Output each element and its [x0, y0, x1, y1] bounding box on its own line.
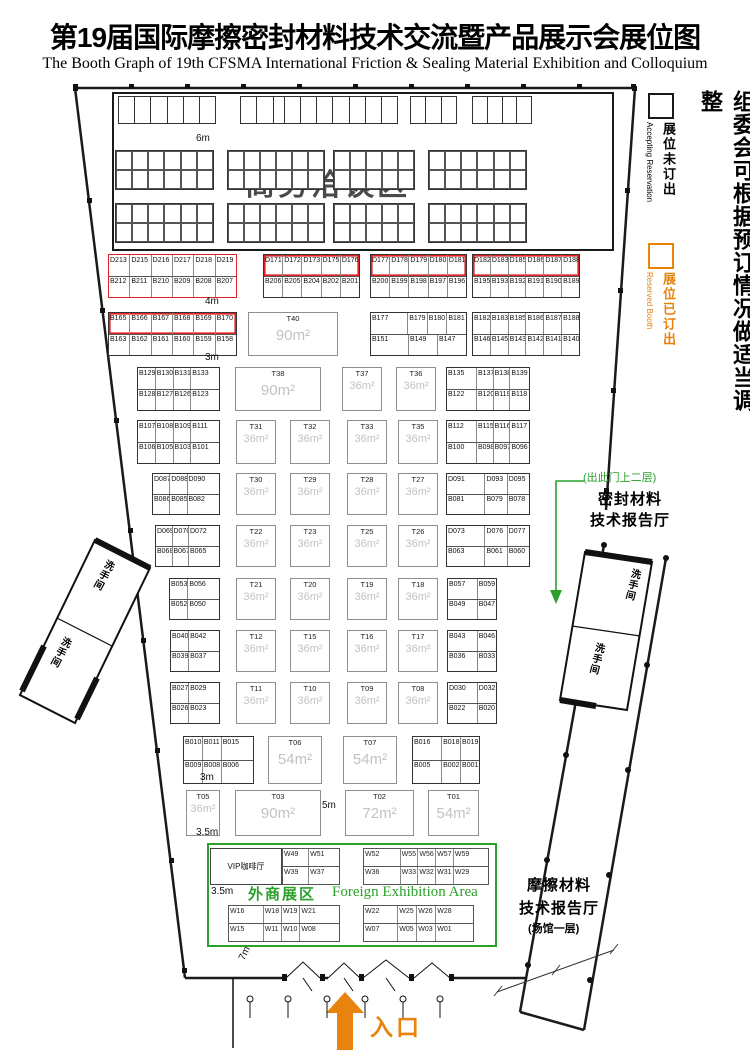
booth-cell: B019 [460, 737, 479, 760]
booth-cell: B023 [188, 704, 219, 724]
t-booth: T2936m² [290, 473, 330, 515]
t-booth: T1036m² [290, 682, 330, 724]
booth-cell: B096 [509, 443, 529, 464]
negotiation-cell [292, 170, 308, 189]
negotiation-grid [428, 203, 527, 243]
booth-cell: B210 [151, 277, 172, 298]
booth-cell: B183 [490, 313, 508, 334]
booth-block: B165B166B167B168B169B170B163B162B161B160… [108, 312, 237, 356]
booth-row: B081B079B078 [447, 494, 529, 515]
sealing-hall-note: (出此门上二层) [583, 469, 656, 485]
booth-cell: B177 [371, 313, 407, 334]
booth-cell: B185 [508, 313, 526, 334]
booth-cell: B120 [476, 390, 493, 411]
booth-cell: B029 [188, 683, 219, 703]
negotiation-cell [477, 151, 493, 170]
booth-cell: B188 [561, 313, 579, 334]
booth-row: B052B050 [170, 599, 219, 620]
booth-cell: D179 [408, 255, 427, 276]
t-booth-area: 36m² [237, 539, 275, 550]
booth-cell: B015 [221, 737, 253, 760]
t-booth-id: T35 [399, 422, 437, 431]
negotiation-cell [199, 97, 215, 123]
foreign-booth-cell: W55 [400, 849, 418, 866]
booth-cell: B181 [446, 313, 466, 334]
t-booth-id: T25 [348, 527, 386, 536]
booth-cell: B033 [477, 652, 496, 672]
booth-cell: B147 [437, 335, 466, 356]
negotiation-cell [349, 97, 365, 123]
negotiation-cell [429, 204, 445, 223]
negotiation-cell [516, 97, 531, 123]
negotiation-cell [366, 151, 382, 170]
legend-reserved-swatch [648, 243, 674, 269]
booth-row: B165B166B167B168B169B170 [109, 313, 236, 334]
foreign-booth-cell: W56 [417, 849, 435, 866]
booth-row: W22W25W26W28 [364, 906, 473, 923]
booth-row: B027B029 [171, 683, 219, 703]
negotiation-strip [240, 96, 290, 124]
t-booth-area: 36m² [348, 487, 386, 498]
negotiation-cell [181, 170, 197, 189]
negotiation-cell [461, 223, 477, 242]
booth-row: B112B115B116B117 [447, 421, 529, 442]
booth-cell: B108 [155, 421, 173, 442]
booth-cell: D185 [508, 255, 526, 276]
t-booth-area: 36m² [237, 487, 275, 498]
booth-cell: B200 [371, 277, 389, 298]
negotiation-cell [332, 97, 348, 123]
t-booth: T3736m² [342, 367, 382, 411]
booth-block: B135B137B138B139B122B120B119B118 [446, 367, 530, 411]
t-booth-id: T36 [397, 369, 435, 378]
negotiation-cell [308, 151, 324, 170]
negotiation-cell [276, 170, 292, 189]
booth-cell: B182 [473, 313, 490, 334]
t-booth-id: T10 [291, 684, 329, 693]
booth-row: B010B011B015 [184, 737, 253, 760]
t-booth: T1536m² [290, 630, 330, 672]
booth-cell: B050 [187, 600, 219, 620]
booth-cell: B053 [170, 579, 187, 599]
negotiation-cell [132, 204, 148, 223]
negotiation-cell [256, 97, 272, 123]
foreign-booth-cell: W37 [308, 867, 339, 884]
booth-cell: D090 [187, 474, 220, 494]
t-booth-id: T19 [348, 580, 386, 589]
booth-row: B135B137B138B139 [447, 368, 529, 389]
booth-cell: D173 [301, 255, 320, 276]
t-booth-area: 54m² [429, 806, 478, 821]
sealing-hall-line2: 技术报告厅 [590, 509, 670, 530]
booth-cell: D069 [156, 526, 172, 546]
booth-row: D073D076D077 [447, 526, 529, 546]
t-booth: T0836m² [398, 682, 438, 724]
booth-cell: B131 [173, 368, 191, 389]
negotiation-cell [494, 223, 510, 242]
booth-row: B022B020 [448, 703, 496, 724]
booth-cell: B209 [172, 277, 193, 298]
booth-cell: D171 [264, 255, 282, 276]
booth-cell: B100 [447, 443, 476, 464]
booth-cell: B115 [476, 421, 493, 442]
negotiation-cell [398, 223, 414, 242]
t-booth-id: T17 [399, 632, 437, 641]
entrance-arrow-icon [326, 992, 364, 1050]
booth-block: D087D088D090B086B085B082 [152, 473, 220, 515]
booth-cell: B065 [188, 547, 219, 567]
vip-room: VIP咖啡厅 [210, 848, 282, 885]
legend-accepting-swatch [648, 93, 674, 119]
negotiation-cell [164, 223, 180, 242]
foreign-booth-cell: W19 [281, 906, 299, 923]
negotiation-cell [510, 170, 526, 189]
booth-row: B129B130B131B133 [138, 368, 219, 389]
booth-cell: B020 [477, 704, 496, 724]
negotiation-cell [334, 223, 350, 242]
foreign-booth-cell: W26 [416, 906, 435, 923]
booth-cell: B067 [172, 547, 189, 567]
negotiation-cell [148, 223, 164, 242]
booth-cell: D182 [473, 255, 490, 276]
dimension-label: 3.5m [196, 827, 218, 838]
negotiation-cell [502, 97, 517, 123]
t-booth-area: 90m² [236, 383, 320, 398]
booth-cell: D073 [447, 526, 484, 546]
booth-cell: D188 [561, 255, 579, 276]
booth-cell: D183 [490, 255, 508, 276]
negotiation-cell [350, 204, 366, 223]
t-booth-area: 90m² [249, 328, 337, 343]
foreign-booth-cell: W51 [308, 849, 339, 866]
booth-cell: B138 [493, 368, 510, 389]
negotiation-cell [116, 223, 132, 242]
booth-cell: B052 [170, 600, 187, 620]
booth-cell: B112 [447, 421, 476, 442]
t-booth: T1736m² [398, 630, 438, 672]
t-booth: T1836m² [398, 578, 438, 620]
booth-row: W39W37 [283, 866, 339, 884]
booth-block: B043B046B036B033 [447, 630, 497, 672]
t-booth-id: T23 [291, 527, 329, 536]
negotiation-cell [477, 170, 493, 189]
t-booth-area: 36m² [399, 487, 437, 498]
negotiation-cell [116, 170, 132, 189]
t-booth: T0936m² [347, 682, 387, 724]
t-booth-area: 36m² [291, 487, 329, 498]
friction-hall-line1: 摩擦材料 [527, 874, 591, 895]
t-booth-area: 36m² [348, 539, 386, 550]
booth-row: W15W11W10W08 [229, 923, 339, 941]
booth-row: B009B008B006 [184, 760, 253, 784]
t-booth: T2336m² [290, 525, 330, 567]
booth-cell: B141 [543, 335, 561, 356]
booth-block: D091D093D095B081B079B078 [446, 473, 530, 515]
booth-cell: D217 [172, 255, 193, 276]
booth-row: B063B061B060 [447, 546, 529, 567]
t-booth: T0272m² [345, 790, 414, 836]
legend-note: 组委会可根据预订情况做适当调整 [694, 90, 750, 420]
booth-cell: B196 [447, 277, 466, 298]
negotiation-cell [134, 97, 150, 123]
negotiation-cell [197, 170, 213, 189]
t-booth: T3890m² [235, 367, 321, 411]
booth-cell: B081 [447, 495, 484, 515]
negotiation-cell [292, 223, 308, 242]
booth-block: W22W25W26W28W07W05W03W01 [363, 905, 474, 942]
foreign-booth-cell: W03 [416, 924, 435, 941]
negotiation-cell [244, 170, 260, 189]
booth-row: B106B105B103B101 [138, 442, 219, 464]
negotiation-cell [334, 170, 350, 189]
booth-block: D069D070D072B068B067B065 [155, 525, 220, 567]
booth-cell: D181 [447, 255, 466, 276]
booth-cell: B005 [413, 761, 441, 784]
negotiation-cell [350, 223, 366, 242]
negotiation-cell [181, 151, 197, 170]
booth-cell: B179 [407, 313, 427, 334]
negotiation-grid [115, 203, 214, 243]
negotiation-cell [445, 151, 461, 170]
t-booth: T1136m² [236, 682, 276, 724]
booth-cell: B082 [187, 495, 220, 515]
booth-block: D182D183D185D186D187D188B195B193B192B191… [472, 254, 580, 298]
booth-cell: B010 [184, 737, 202, 760]
negotiation-cell [334, 204, 350, 223]
t-booth-id: T09 [348, 684, 386, 693]
t-booth-area: 36m² [237, 644, 275, 655]
booth-cell: B198 [408, 277, 427, 298]
booth-row: W52W55W56W57W59 [364, 849, 488, 866]
foreign-booth-cell: W15 [229, 924, 263, 941]
booth-cell: B140 [561, 335, 579, 356]
booth-cell: B122 [447, 390, 476, 411]
booth-cell: B146 [473, 335, 490, 356]
booth-row: D177D178D179D180D181 [371, 255, 466, 276]
booth-cell: B117 [509, 421, 529, 442]
negotiation-cell [228, 223, 244, 242]
negotiation-grid [333, 150, 415, 190]
booth-cell: B105 [155, 443, 173, 464]
negotiation-cell [477, 204, 493, 223]
negotiation-cell [473, 97, 487, 123]
booth-cell: B127 [155, 390, 173, 411]
booth-row: B086B085B082 [153, 494, 219, 515]
foreign-booth-cell: W33 [400, 867, 418, 884]
t-booth-area: 36m² [291, 539, 329, 550]
negotiation-cell [116, 151, 132, 170]
t-booth-area: 36m² [348, 696, 386, 707]
foreign-booth-cell: W59 [453, 849, 488, 866]
booth-cell: B205 [282, 277, 301, 298]
negotiation-cell [148, 204, 164, 223]
foreign-booth-cell: W16 [229, 906, 263, 923]
booth-cell: B207 [215, 277, 236, 298]
vip-room-label: VIP咖啡厅 [228, 861, 265, 872]
t-booth-area: 36m² [237, 696, 275, 707]
negotiation-strip [410, 96, 457, 124]
t-booth-id: T05 [187, 792, 219, 801]
booth-cell: B109 [173, 421, 191, 442]
negotiation-cell [132, 170, 148, 189]
booth-cell: D093 [484, 474, 506, 494]
t-booth: T3536m² [398, 420, 438, 464]
foreign-booth-cell: W10 [281, 924, 299, 941]
foreign-booth-cell: W25 [397, 906, 416, 923]
negotiation-cell [164, 151, 180, 170]
booth-row: B177B179B180B181 [371, 313, 466, 334]
booth-cell: D215 [129, 255, 150, 276]
negotiation-cell [167, 97, 183, 123]
negotiation-cell [398, 170, 414, 189]
negotiation-cell [181, 223, 197, 242]
booth-cell: B042 [188, 631, 219, 651]
booth-cell: D070 [172, 526, 189, 546]
booth-cell: B208 [193, 277, 214, 298]
negotiation-cell [260, 170, 276, 189]
negotiation-cell [510, 223, 526, 242]
t-booth-id: T15 [291, 632, 329, 641]
negotiation-cell [366, 170, 382, 189]
booth-cell: B016 [413, 737, 441, 760]
t-booth-area: 54m² [344, 752, 396, 767]
booth-row: D182D183D185D186D187D188 [473, 255, 579, 276]
booth-cell: B119 [493, 390, 510, 411]
negotiation-cell [510, 204, 526, 223]
booth-cell: B162 [129, 335, 150, 356]
dimension-label: 3.5m [211, 886, 233, 897]
negotiation-cell [228, 151, 244, 170]
booth-block: W52W55W56W57W59W36W33W32W31W29 [363, 848, 489, 885]
legend-accepting-label-en: Accepting Reservation [645, 122, 654, 232]
booth-cell: B098 [476, 443, 493, 464]
booth-cell: B085 [169, 495, 186, 515]
booth-cell: B166 [129, 313, 150, 334]
negotiation-cell [285, 97, 300, 123]
t-booth: T3036m² [236, 473, 276, 515]
t-booth: T3136m² [236, 420, 276, 464]
booth-cell: D030 [448, 683, 477, 703]
booth-cell: B195 [473, 277, 490, 298]
booth-cell: B063 [447, 547, 484, 567]
booth-cell: D175 [321, 255, 340, 276]
t-booth-area: 36m² [291, 696, 329, 707]
booth-block: B027B029B026B023 [170, 682, 220, 724]
sealing-hall-line1: 密封材料 [598, 488, 662, 509]
negotiation-cell [382, 170, 398, 189]
t-booth-area: 36m² [237, 592, 275, 603]
booth-block: B010B011B015B009B008B006 [183, 736, 254, 784]
negotiation-cell [308, 204, 324, 223]
booth-block: D213D215D216D217D218D219B212B211B210B209… [108, 254, 237, 298]
booth-cell: B189 [561, 277, 579, 298]
booth-cell: B137 [476, 368, 493, 389]
t-booth-area: 36m² [348, 592, 386, 603]
booth-cell: B027 [171, 683, 188, 703]
booth-row: B068B067B065 [156, 546, 219, 567]
negotiation-cell [429, 151, 445, 170]
t-booth-area: 36m² [348, 644, 386, 655]
negotiation-cell [334, 151, 350, 170]
booth-block: B177B179B180B181B151B149B147 [370, 312, 467, 356]
booth-cell: B056 [187, 579, 219, 599]
booth-row: B040B042 [171, 631, 219, 651]
left-restroom-structure [20, 540, 150, 723]
negotiation-cell [494, 151, 510, 170]
booth-cell: D076 [484, 526, 506, 546]
booth-cell: B204 [301, 277, 320, 298]
booth-row: W16W18W19W21 [229, 906, 339, 923]
negotiation-cell [244, 204, 260, 223]
booth-row: B212B211B210B209B208B207 [109, 276, 236, 298]
foreign-booth-cell: W21 [299, 906, 339, 923]
t-booth-area: 54m² [269, 752, 321, 767]
foreign-booth-cell: W49 [283, 849, 308, 866]
foreign-area-label-zh: 外商展区 [248, 883, 316, 904]
t-booth: T2636m² [398, 525, 438, 567]
negotiation-cell [276, 151, 292, 170]
t-booth: T0654m² [268, 736, 322, 784]
negotiation-cell [494, 170, 510, 189]
booth-cell: B111 [190, 421, 219, 442]
booth-row: D087D088D090 [153, 474, 219, 494]
booth-cell: B078 [507, 495, 529, 515]
negotiation-cell [398, 151, 414, 170]
t-booth: T2236m² [236, 525, 276, 567]
booth-row: W07W05W03W01 [364, 923, 473, 941]
negotiation-cell [148, 151, 164, 170]
booth-cell: B145 [490, 335, 508, 356]
booth-cell: B211 [129, 277, 150, 298]
booth-cell: B022 [448, 704, 477, 724]
booth-cell: B142 [525, 335, 543, 356]
negotiation-cell [510, 151, 526, 170]
booth-row: B100B098B097B096 [447, 442, 529, 464]
booth-cell: D219 [215, 255, 236, 276]
booth-cell: D213 [109, 255, 129, 276]
t-booth-area: 36m² [291, 434, 329, 445]
booth-cell: B193 [490, 277, 508, 298]
booth-row: D069D070D072 [156, 526, 219, 546]
negotiation-cell [316, 97, 332, 123]
t-booth: T0754m² [343, 736, 397, 784]
booth-cell: B130 [155, 368, 173, 389]
legend-reserved-label-en: Reserved Booth [645, 272, 654, 362]
booth-cell: B116 [493, 421, 510, 442]
booth-cell: B202 [321, 277, 340, 298]
booth-block: B016B018B019B005B002B001 [412, 736, 480, 784]
t-booth-id: T33 [348, 422, 386, 431]
negotiation-cell [461, 204, 477, 223]
friction-hall-line2: 技术报告厅 [519, 897, 599, 918]
negotiation-cell [429, 170, 445, 189]
foreign-booth-cell: W52 [364, 849, 400, 866]
t-booth: T2736m² [398, 473, 438, 515]
booth-cell: B126 [173, 390, 191, 411]
t-booth: T1636m² [347, 630, 387, 672]
foreign-booth-cell: W07 [364, 924, 397, 941]
t-booth: T3236m² [290, 420, 330, 464]
t-booth-area: 36m² [291, 592, 329, 603]
booth-cell: B068 [156, 547, 172, 567]
legend-accepting-label-zh: 展位未订出 [659, 122, 678, 212]
negotiation-cell [411, 97, 425, 123]
t-booth-id: T40 [249, 314, 337, 323]
booth-block: B057B059B049B047 [447, 578, 497, 620]
negotiation-cell [477, 223, 493, 242]
negotiation-cell [461, 151, 477, 170]
booth-block: B040B042B039B037 [170, 630, 220, 672]
